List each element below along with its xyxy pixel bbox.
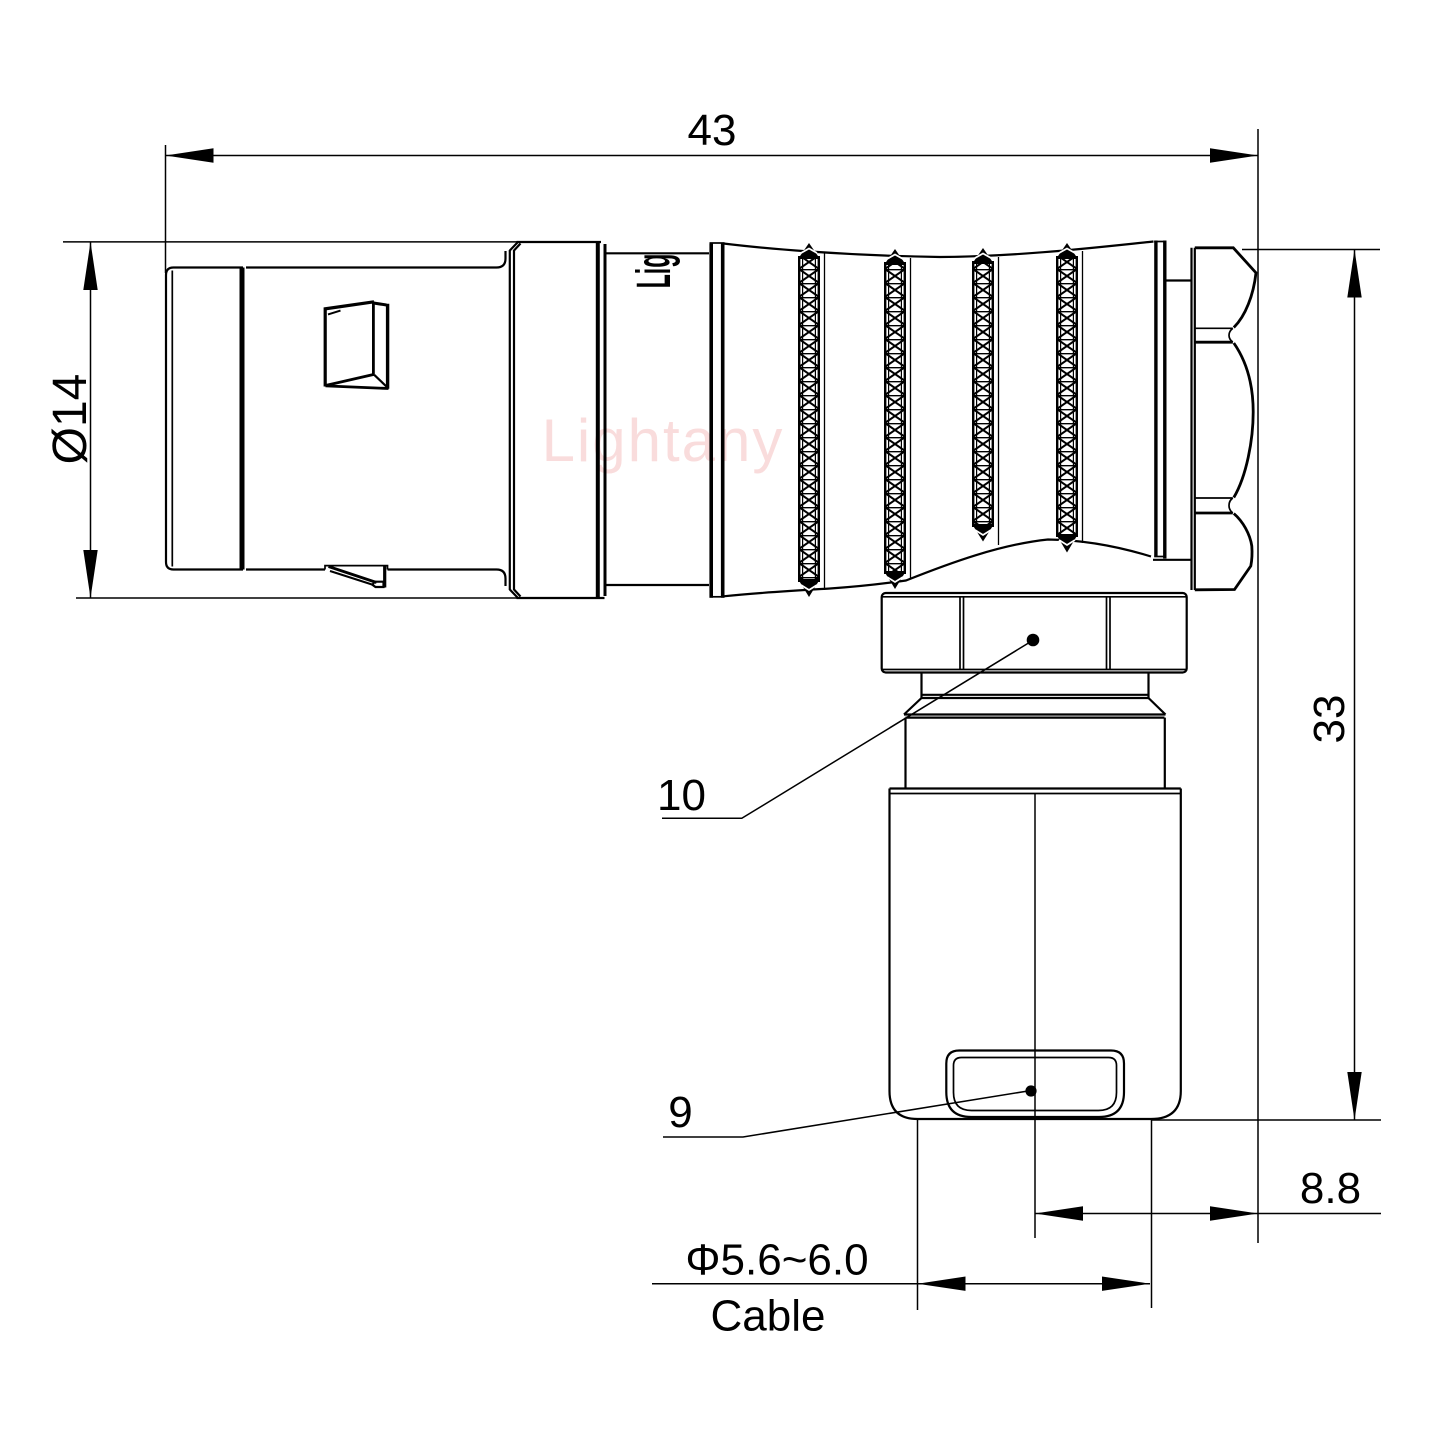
svg-text:Φ5.6~6.0: Φ5.6~6.0 — [685, 1236, 868, 1285]
svg-text:Cable: Cable — [711, 1292, 826, 1341]
svg-text:33: 33 — [1305, 695, 1354, 744]
svg-text:8.8: 8.8 — [1300, 1164, 1361, 1213]
svg-text:43: 43 — [688, 106, 737, 155]
svg-text:Ø14: Ø14 — [44, 374, 97, 465]
svg-text:10: 10 — [657, 771, 706, 820]
svg-text:Lig: Lig — [627, 254, 681, 289]
svg-text:9: 9 — [668, 1088, 692, 1137]
svg-text:Lightany: Lightany — [542, 407, 785, 474]
